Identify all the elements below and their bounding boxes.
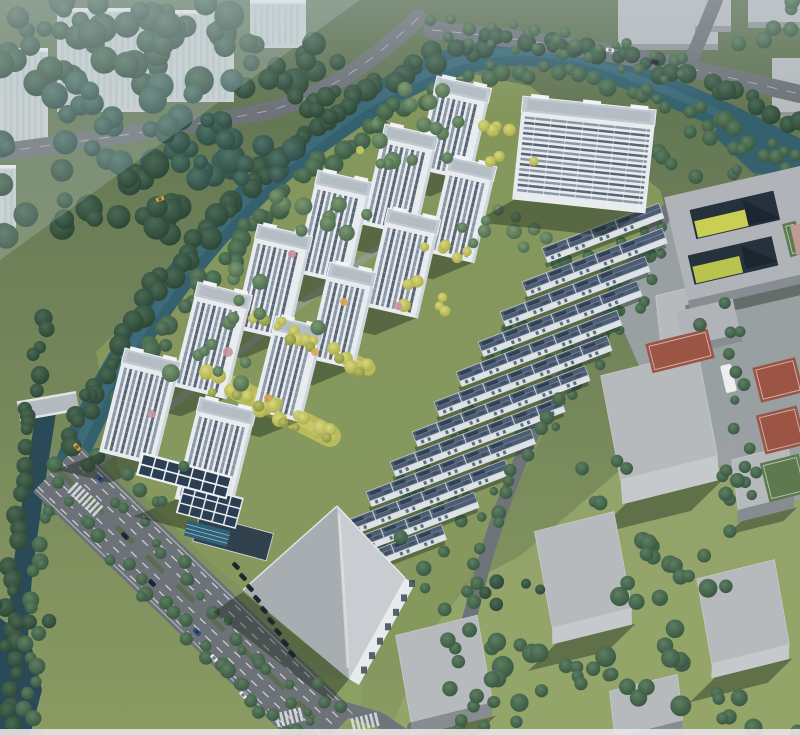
- tree: [682, 570, 695, 583]
- tree: [16, 457, 34, 475]
- tree: [489, 696, 500, 707]
- tree: [220, 662, 236, 678]
- tree: [159, 339, 172, 352]
- tree: [731, 689, 748, 706]
- tree: [510, 693, 528, 711]
- tree: [702, 130, 718, 146]
- tree: [233, 170, 249, 186]
- tree: [233, 295, 244, 306]
- tree: [416, 117, 432, 133]
- tree: [529, 156, 538, 165]
- accent-tree: [288, 250, 296, 258]
- tree: [731, 164, 742, 175]
- tree: [136, 591, 147, 602]
- tree: [729, 366, 742, 379]
- storefront-glass: [361, 667, 367, 674]
- masterplan-scene: [0, 0, 800, 735]
- tree: [322, 433, 332, 443]
- tree: [469, 689, 484, 704]
- tree: [105, 555, 116, 566]
- tree: [193, 155, 207, 169]
- tree: [730, 396, 739, 405]
- tree: [403, 279, 414, 290]
- tree: [284, 334, 296, 346]
- tree: [152, 539, 161, 548]
- tree: [726, 120, 742, 136]
- tree: [213, 366, 224, 377]
- aerial-render-canvas: [0, 0, 800, 735]
- tree: [693, 318, 707, 332]
- tree: [718, 487, 733, 502]
- tree: [478, 120, 490, 132]
- storefront-glass: [409, 580, 415, 587]
- tree: [670, 695, 691, 716]
- tree: [9, 531, 28, 550]
- tree: [83, 403, 100, 420]
- tree: [228, 262, 244, 278]
- tree: [593, 496, 608, 511]
- tree: [688, 169, 703, 184]
- tree: [442, 681, 457, 696]
- tree: [136, 573, 148, 585]
- tree: [334, 700, 347, 713]
- tree: [21, 423, 33, 435]
- tree: [719, 580, 733, 594]
- tree: [468, 238, 478, 248]
- tree: [215, 130, 235, 150]
- tree: [292, 423, 300, 431]
- tree: [769, 149, 784, 164]
- tree: [123, 558, 136, 571]
- tree: [744, 443, 756, 455]
- tree: [142, 151, 169, 178]
- tree: [504, 464, 517, 477]
- tree: [306, 717, 315, 726]
- tree: [121, 467, 135, 481]
- accent-tree: [394, 302, 402, 310]
- tree: [455, 714, 468, 727]
- storefront-glass: [377, 638, 383, 645]
- tree: [652, 590, 668, 606]
- tree: [285, 680, 295, 690]
- tree: [723, 525, 736, 538]
- tree: [452, 116, 464, 128]
- tree: [318, 696, 330, 708]
- tree: [320, 216, 336, 232]
- tree: [178, 461, 189, 472]
- accent-tree: [223, 347, 233, 357]
- tree: [206, 339, 217, 350]
- tree: [499, 486, 512, 499]
- tree: [162, 364, 180, 382]
- tree: [269, 189, 284, 204]
- tree: [40, 513, 51, 524]
- accent-tree: [148, 410, 156, 418]
- tree: [21, 687, 34, 700]
- tree: [494, 151, 505, 162]
- tree: [25, 710, 41, 726]
- tree: [720, 464, 733, 477]
- tree: [312, 677, 324, 689]
- tree: [277, 317, 286, 326]
- tree: [269, 166, 285, 182]
- tree: [430, 122, 443, 135]
- tree: [334, 353, 344, 363]
- tree: [294, 197, 312, 215]
- tree: [510, 716, 522, 728]
- tree: [216, 112, 232, 128]
- tree: [719, 297, 731, 309]
- tree: [361, 209, 372, 220]
- tree: [238, 646, 247, 655]
- tree: [457, 222, 468, 233]
- tree: [178, 555, 192, 569]
- tree: [171, 154, 190, 173]
- accent-tree: [264, 394, 272, 402]
- tree: [297, 412, 310, 425]
- tree: [10, 666, 24, 680]
- tree: [236, 678, 249, 691]
- tree: [493, 517, 504, 528]
- tree: [339, 225, 355, 241]
- tree: [712, 692, 725, 705]
- tree: [22, 614, 37, 629]
- tree: [416, 561, 431, 576]
- tree: [31, 366, 49, 384]
- tree: [605, 668, 618, 681]
- tree: [186, 167, 210, 191]
- tree: [200, 640, 212, 652]
- accent-tree: [356, 146, 364, 154]
- tree: [180, 572, 193, 585]
- tree: [620, 576, 635, 591]
- tree: [452, 655, 465, 668]
- tree: [155, 321, 170, 336]
- tree: [462, 623, 477, 638]
- tree: [166, 605, 180, 619]
- tree: [474, 543, 486, 555]
- tree: [716, 712, 728, 724]
- tree: [260, 664, 271, 675]
- tree: [490, 598, 504, 612]
- tree: [17, 636, 33, 652]
- storefront-glass: [369, 652, 375, 659]
- tree: [595, 646, 616, 667]
- tree: [420, 242, 429, 251]
- tree: [233, 375, 249, 391]
- tree: [79, 389, 92, 402]
- tree: [157, 496, 168, 507]
- tree: [208, 388, 217, 397]
- tree: [661, 649, 680, 668]
- tree: [407, 154, 418, 165]
- accent-tree: [311, 348, 319, 356]
- tree: [534, 421, 548, 435]
- tree: [30, 384, 44, 398]
- tree: [736, 143, 748, 155]
- tree: [303, 708, 312, 717]
- tree: [25, 601, 38, 614]
- storefront-glass: [385, 623, 391, 630]
- tree: [575, 462, 589, 476]
- tree: [442, 152, 454, 164]
- tree: [32, 537, 48, 553]
- tree: [467, 557, 480, 570]
- tree: [478, 225, 491, 238]
- tree: [638, 679, 654, 695]
- tree: [462, 247, 472, 257]
- tree: [253, 400, 264, 411]
- tree: [767, 138, 778, 149]
- tree: [640, 547, 654, 561]
- tree: [438, 293, 448, 303]
- tree: [229, 633, 242, 646]
- tree: [552, 392, 565, 405]
- tree: [7, 585, 19, 597]
- tree: [107, 205, 131, 229]
- tree: [29, 658, 46, 675]
- tree: [697, 549, 711, 563]
- storefront-glass: [401, 594, 407, 601]
- tree: [64, 497, 74, 507]
- tree: [354, 367, 365, 378]
- tree: [30, 676, 41, 687]
- tree: [684, 125, 697, 138]
- tree: [296, 225, 308, 237]
- tree: [438, 602, 452, 616]
- tree: [747, 490, 758, 501]
- tree: [196, 592, 204, 600]
- tree: [467, 595, 481, 609]
- tree: [39, 321, 55, 337]
- tree: [242, 390, 254, 402]
- tree: [522, 449, 535, 462]
- tree: [83, 517, 95, 529]
- tree: [440, 306, 451, 317]
- tree: [252, 706, 265, 719]
- tree: [737, 378, 750, 391]
- tree: [757, 149, 771, 163]
- tree: [628, 594, 644, 610]
- tree: [252, 274, 268, 290]
- tree: [42, 614, 57, 629]
- tree: [723, 348, 735, 360]
- tree: [285, 697, 297, 709]
- tree: [236, 155, 254, 173]
- tree: [735, 326, 746, 337]
- tree: [218, 252, 231, 265]
- tree: [200, 113, 215, 128]
- tree: [267, 708, 280, 721]
- tree: [99, 367, 117, 385]
- tree: [489, 574, 504, 589]
- tree: [281, 138, 304, 161]
- tree: [240, 357, 252, 369]
- tree: [375, 158, 385, 168]
- tree: [155, 547, 167, 559]
- tree: [521, 579, 531, 589]
- tree: [440, 632, 456, 648]
- tree: [666, 620, 685, 639]
- tree: [1, 681, 18, 698]
- tree: [620, 462, 633, 475]
- tree: [327, 342, 340, 355]
- tree: [27, 348, 40, 361]
- tree: [372, 133, 388, 149]
- tree: [728, 423, 740, 435]
- tree: [179, 613, 193, 627]
- accent-tree: [340, 298, 348, 306]
- tree: [730, 473, 745, 488]
- tree: [665, 158, 678, 171]
- tree: [484, 671, 500, 687]
- tree: [180, 632, 194, 646]
- tree: [699, 579, 718, 598]
- tree: [452, 252, 463, 263]
- tree: [479, 587, 491, 599]
- tree: [133, 483, 148, 498]
- tree: [750, 467, 762, 479]
- tree: [71, 414, 85, 428]
- storefront-glass: [393, 609, 399, 616]
- tree: [371, 119, 382, 130]
- tree: [27, 565, 40, 578]
- tree: [574, 677, 587, 690]
- tree: [439, 240, 450, 251]
- tree: [91, 528, 106, 543]
- tree: [13, 485, 30, 502]
- tree: [739, 461, 751, 473]
- tree: [535, 584, 545, 594]
- tree: [535, 684, 548, 697]
- tree: [503, 124, 516, 137]
- tree: [178, 299, 192, 313]
- tree: [331, 197, 347, 213]
- tree: [227, 312, 239, 324]
- tree: [296, 168, 312, 184]
- border-strip: [0, 729, 800, 735]
- tree: [420, 583, 431, 594]
- tree: [488, 633, 507, 652]
- tree: [503, 475, 514, 486]
- tree: [518, 241, 530, 253]
- tree: [394, 530, 408, 544]
- tree: [86, 210, 103, 227]
- tree: [7, 651, 24, 668]
- tree: [52, 476, 65, 489]
- tree: [540, 232, 553, 245]
- tree: [481, 215, 491, 225]
- tree: [529, 643, 548, 662]
- tree: [254, 307, 267, 320]
- tree: [310, 320, 325, 335]
- tree: [118, 502, 129, 513]
- tree: [278, 418, 288, 428]
- tree: [18, 439, 34, 455]
